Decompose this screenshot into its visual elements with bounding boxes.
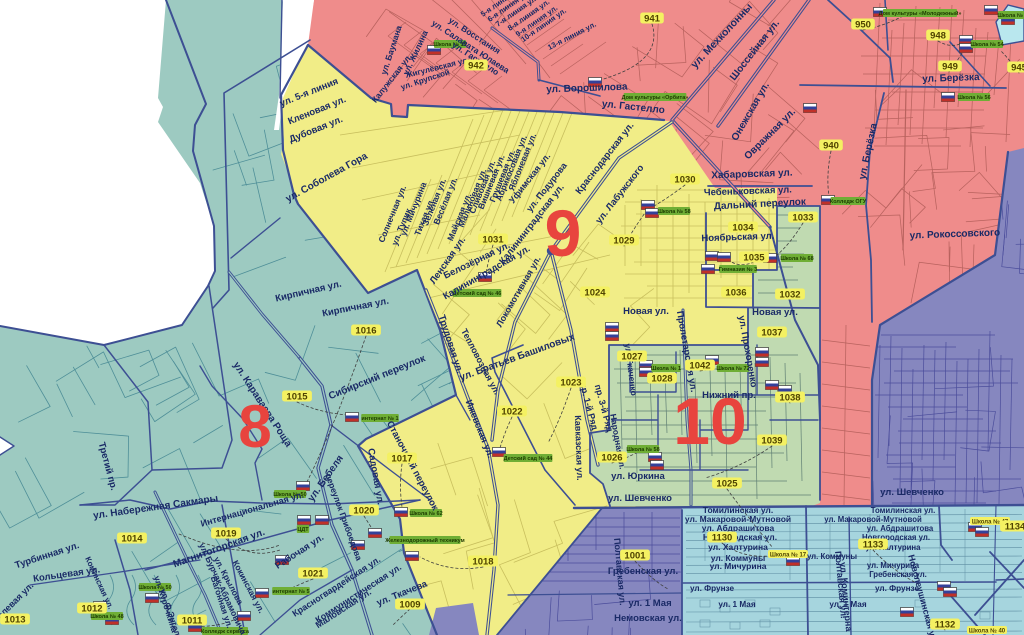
svg-text:интернат № 5: интернат № 5 [272, 589, 309, 595]
svg-text:1015: 1015 [286, 392, 308, 403]
svg-text:1028: 1028 [651, 374, 672, 385]
svg-text:1022: 1022 [501, 407, 522, 418]
svg-text:1025: 1025 [716, 479, 738, 490]
svg-text:1024: 1024 [584, 288, 606, 299]
svg-text:1026: 1026 [601, 453, 622, 464]
svg-text:Школа № 68: Школа № 68 [780, 256, 813, 262]
svg-text:Школа № 62: Школа № 62 [409, 511, 442, 517]
svg-text:1027: 1027 [621, 352, 642, 363]
svg-text:1017: 1017 [391, 454, 412, 465]
svg-text:1130: 1130 [712, 533, 733, 544]
svg-text:1042: 1042 [689, 361, 710, 372]
svg-text:950: 950 [855, 20, 871, 31]
svg-text:ул. 1 Мая: ул. 1 Мая [628, 598, 671, 609]
svg-text:1012: 1012 [81, 604, 102, 615]
svg-text:Школа № 17: Школа № 17 [770, 552, 807, 559]
svg-text:Школа № 58: Школа № 58 [657, 209, 690, 215]
svg-text:1134: 1134 [1005, 522, 1024, 533]
svg-text:ул. Юркина: ул. Юркина [611, 471, 665, 482]
svg-text:ул. Шевченко: ул. Шевченко [880, 487, 944, 498]
svg-text:Школа № 40: Школа № 40 [969, 628, 1006, 635]
svg-text:1021: 1021 [302, 569, 324, 580]
svg-text:Дом культуры «Орбита»: Дом культуры «Орбита» [622, 94, 689, 101]
svg-text:940: 940 [823, 141, 839, 152]
svg-text:ул. Коммуны: ул. Коммуны [807, 552, 857, 561]
svg-text:948: 948 [930, 31, 946, 42]
svg-text:ул. 1 Мая: ул. 1 Мая [718, 600, 755, 609]
svg-text:Немовская ул.: Немовская ул. [614, 613, 682, 624]
svg-text:1011: 1011 [182, 616, 203, 627]
svg-text:Школа № 48: Школа № 48 [90, 614, 123, 620]
svg-text:1029: 1029 [613, 236, 634, 247]
svg-text:ул. Фрунзе: ул. Фрунзе [690, 584, 735, 593]
svg-text:ЦДТ: ЦДТ [297, 527, 309, 533]
svg-text:Новая ул.: Новая ул. [623, 306, 669, 317]
svg-text:Школа № 54: Школа № 54 [970, 42, 1004, 48]
svg-text:1036: 1036 [725, 288, 746, 299]
svg-text:1034: 1034 [732, 223, 754, 234]
svg-text:1020: 1020 [353, 506, 374, 517]
svg-text:1132: 1132 [935, 620, 956, 631]
svg-text:ул. Халтурина: ул. Халтурина [708, 542, 768, 552]
svg-text:Дом культуры «Молодежный»: Дом культуры «Молодежный» [879, 10, 962, 17]
svg-text:1038: 1038 [779, 393, 800, 404]
svg-text:Школа № 55: Школа № 55 [997, 13, 1024, 19]
svg-text:1013: 1013 [4, 615, 25, 626]
svg-text:Новая ул.: Новая ул. [752, 307, 798, 318]
svg-text:Гребенская ул.: Гребенская ул. [608, 566, 678, 577]
svg-text:1031: 1031 [482, 235, 504, 246]
svg-text:1032: 1032 [779, 290, 800, 301]
svg-text:Школа № 1: Школа № 1 [651, 366, 681, 372]
svg-text:1001: 1001 [624, 551, 646, 562]
svg-text:1014: 1014 [121, 534, 143, 545]
svg-text:10: 10 [673, 384, 746, 458]
svg-text:1037: 1037 [761, 328, 782, 339]
svg-text:1035: 1035 [743, 253, 765, 264]
svg-text:9: 9 [545, 196, 582, 270]
svg-text:Школа № 56: Школа № 56 [957, 95, 990, 101]
svg-text:ул. Фрунзе: ул. Фрунзе [875, 584, 920, 593]
svg-text:1039: 1039 [761, 436, 782, 447]
svg-text:8: 8 [238, 393, 271, 460]
svg-text:942: 942 [468, 61, 484, 72]
svg-text:ул. Макаровой-Мутновой: ул. Макаровой-Мутновой [824, 515, 922, 524]
svg-text:1016: 1016 [355, 326, 376, 337]
svg-text:ул. Абдрашитова: ул. Абдрашитова [867, 524, 934, 533]
svg-text:1030: 1030 [674, 175, 695, 186]
svg-text:941: 941 [644, 14, 661, 25]
svg-text:1018: 1018 [472, 557, 493, 568]
svg-text:ул. Берёзка: ул. Берёзка [922, 72, 980, 85]
svg-text:Колледж ОГУ: Колледж ОГУ [830, 199, 867, 205]
svg-text:945: 945 [1011, 63, 1024, 74]
svg-text:Железнодорожный техникум: Железнодорожный техникум [384, 537, 464, 544]
svg-text:Школа № 58: Школа № 58 [626, 447, 659, 453]
svg-text:949: 949 [942, 62, 958, 73]
svg-text:Детский сад № 44: Детский сад № 44 [504, 455, 554, 462]
svg-text:ул. Шевченко: ул. Шевченко [608, 493, 672, 504]
svg-text:Гимназия № 3: Гимназия № 3 [719, 267, 757, 273]
svg-text:1019: 1019 [215, 529, 236, 540]
svg-text:1023: 1023 [560, 378, 581, 389]
svg-text:ул. Мичурина: ул. Мичурина [710, 561, 767, 571]
svg-text:1009: 1009 [399, 600, 420, 611]
svg-text:1033: 1033 [792, 213, 813, 224]
svg-text:1133: 1133 [863, 540, 884, 551]
svg-text:Томилинская ул.: Томилинская ул. [871, 506, 936, 515]
